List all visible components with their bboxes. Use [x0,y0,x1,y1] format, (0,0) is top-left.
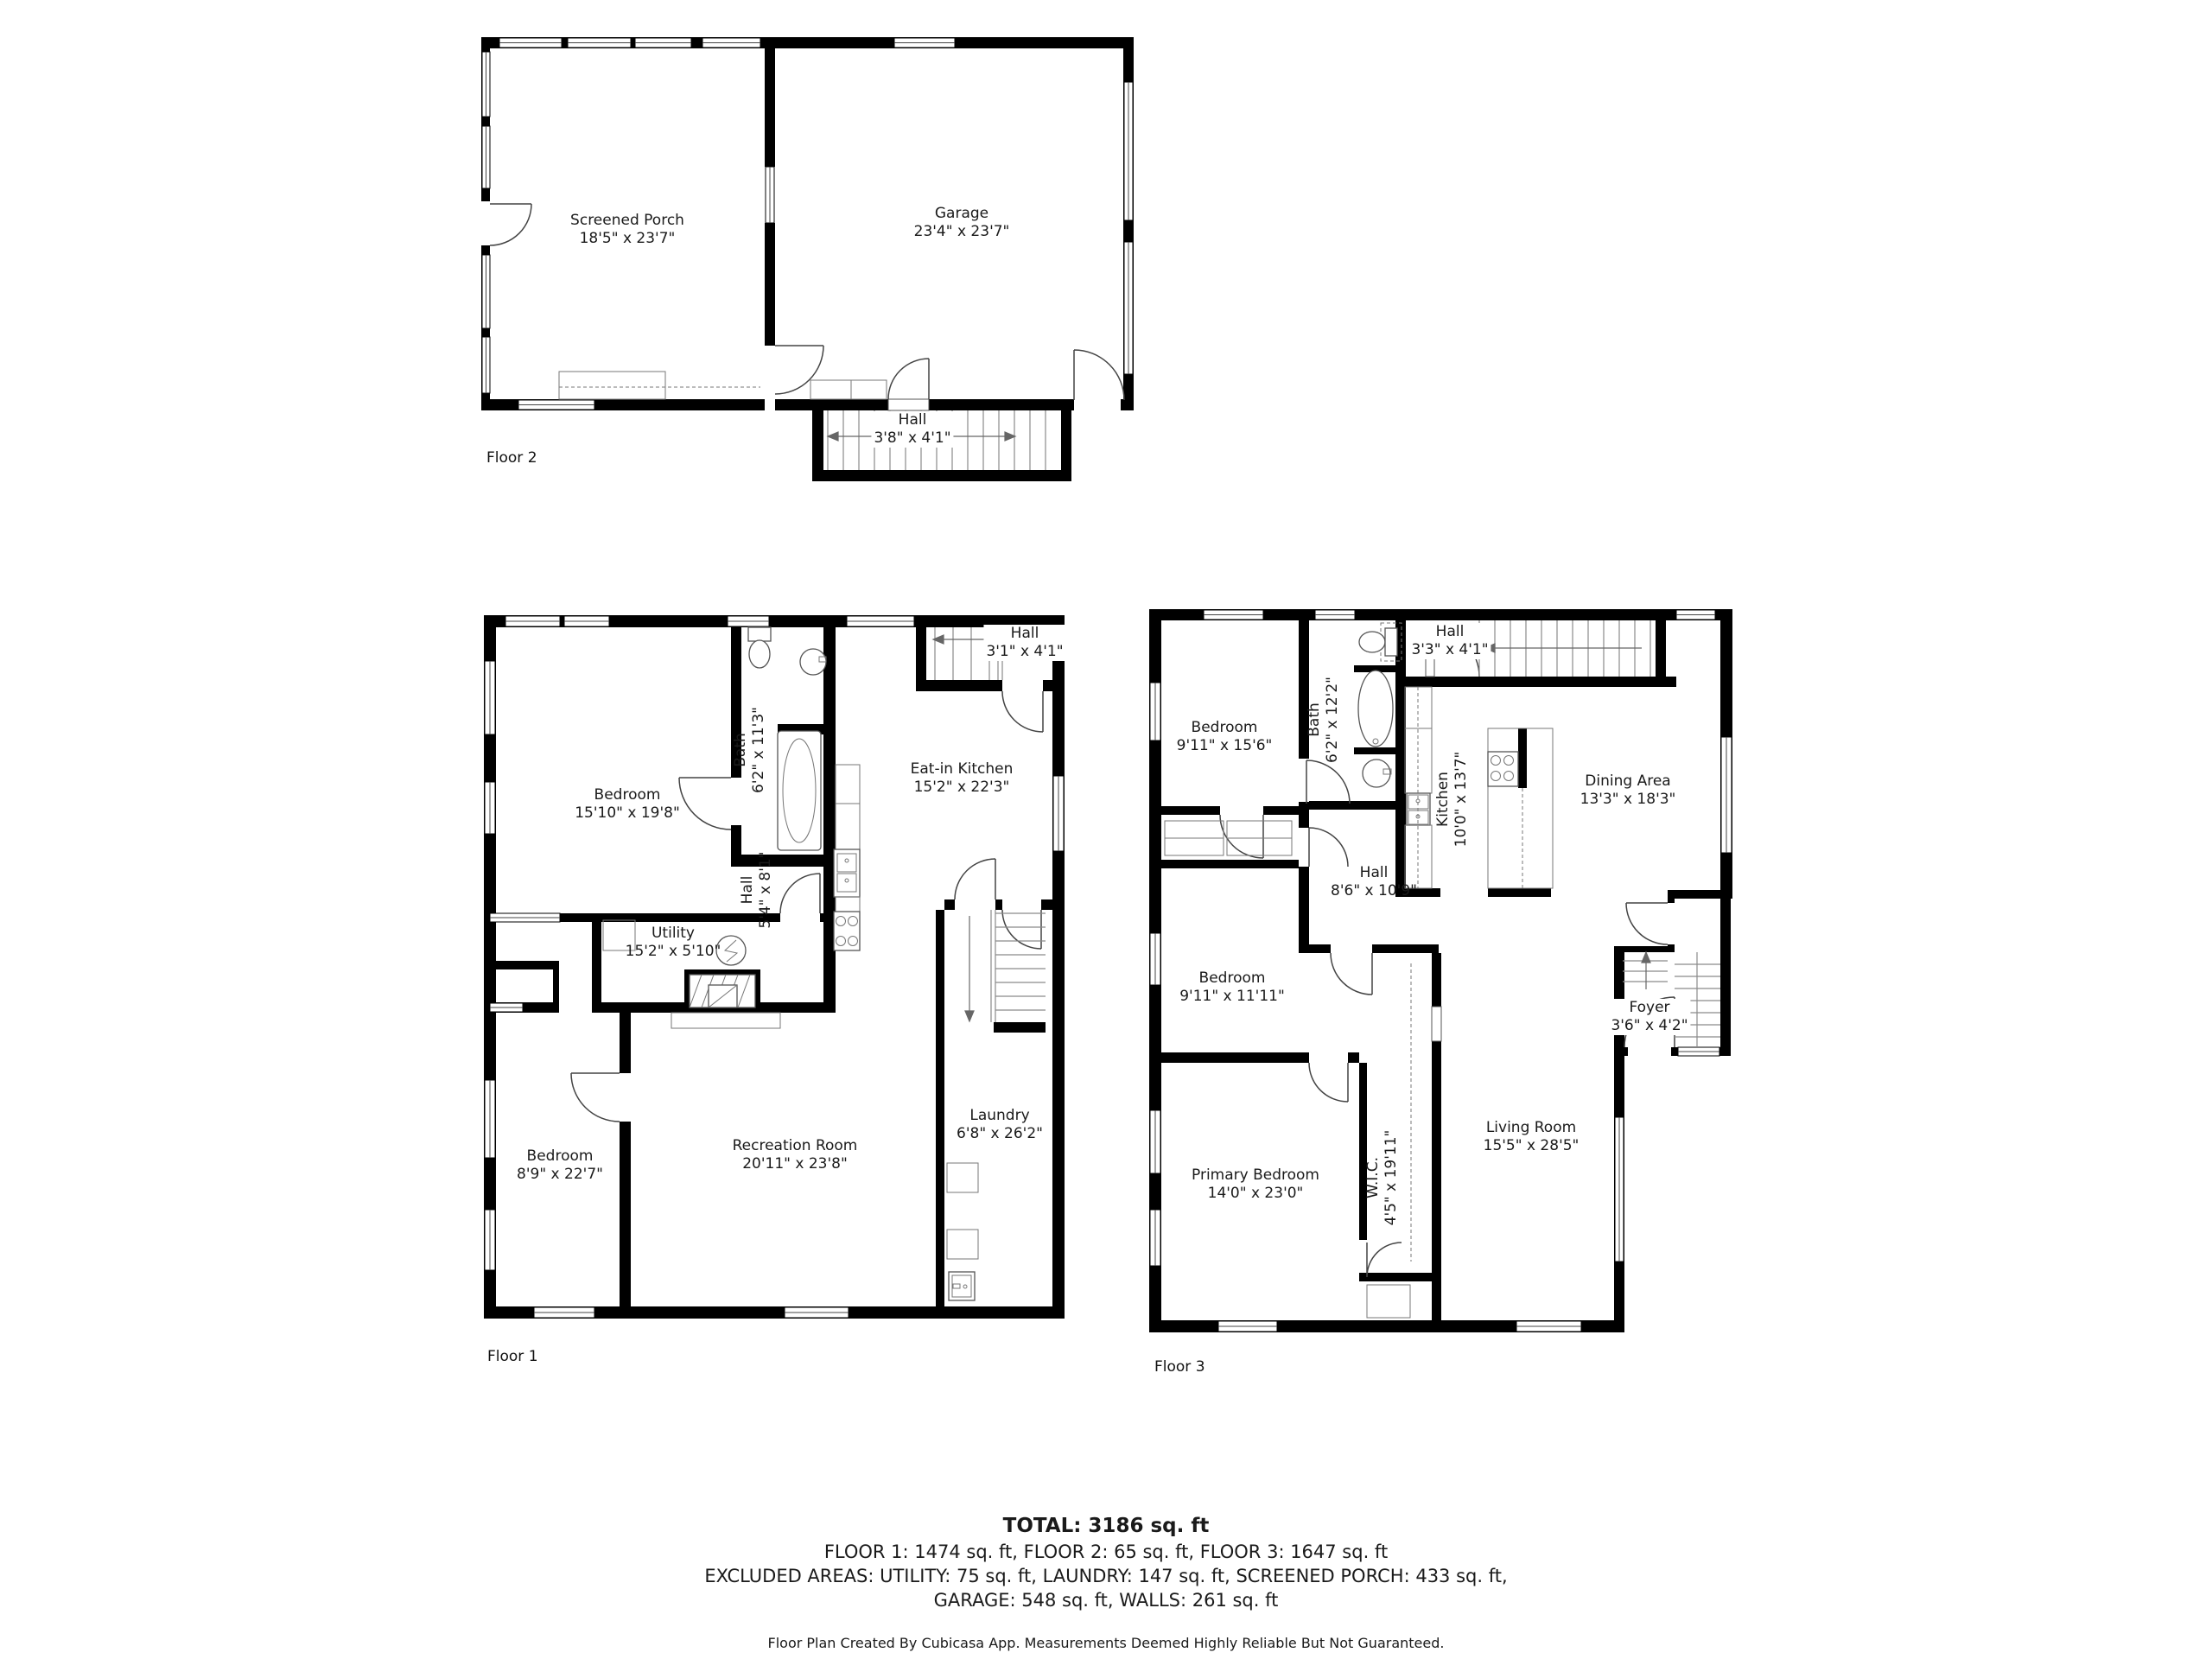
room-name: Hall [1411,623,1488,641]
floor-2-plan [481,37,1134,481]
room-label-kitchen-f3: Kitchen 10'0" x 13'7" [1434,752,1471,848]
toilet-fixture-icon [1359,632,1385,652]
dryer-icon [947,1230,978,1259]
summary-footer: Floor Plan Created By Cubicasa App. Meas… [0,1635,2212,1651]
room-name: Kitchen [1434,752,1452,848]
room-dims: 6'2" x 12'2" [1324,677,1342,763]
room-dims: 3'8" x 4'1" [874,429,950,448]
room-dims: 5'4" x 8'1" [757,851,775,928]
toilet-fixture-icon [748,627,771,641]
room-dims: 23'4" x 23'7" [914,223,1010,241]
room-dims: 6'8" x 26'2" [957,1125,1043,1143]
summary-excluded-line-1: EXCLUDED AREAS: UTILITY: 75 sq. ft, LAUN… [0,1566,2212,1586]
room-name: Bath [1306,677,1324,763]
room-name: W.I.C. [1364,1130,1382,1226]
room-label-hall-mid-f3: Hall 8'6" x 10'9" [1331,864,1417,900]
room-label-bedroom-2-f1: Bedroom 8'9" x 22'7" [517,1147,603,1184]
bathtub-fixture-icon [778,731,821,850]
fridge-icon [836,765,860,804]
room-dims: 3'3" x 4'1" [1411,641,1488,659]
washer-icon [947,1163,978,1192]
floor-1-plan [484,615,1065,1319]
room-name: Foyer [1611,999,1688,1017]
room-dims: 20'11" x 23'8" [733,1155,858,1173]
room-name: Hall [1331,864,1417,882]
room-name: Bedroom [1179,969,1285,988]
room-label-hall-top-f3: Hall 3'3" x 4'1" [1408,623,1491,659]
summary-total: TOTAL: 3186 sq. ft [0,1515,2212,1537]
room-label-utility: Utility 15'2" x 5'10" [626,925,721,961]
room-label-hall-f2: Hall 3'8" x 4'1" [871,411,953,448]
room-label-dining-area: Dining Area 13'3" x 18'3" [1580,772,1676,809]
floor-2-caption: Floor 2 [486,449,537,467]
room-name: Bedroom [575,786,680,804]
room-dims: 15'2" x 5'10" [626,943,721,961]
room-name: Utility [626,925,721,943]
floorplan-page: { "floors": [ { "caption": "Floor 2", "r… [0,0,2212,1659]
room-label-recreation-room: Recreation Room 20'11" x 23'8" [733,1137,858,1173]
room-dims: 4'5" x 19'11" [1382,1130,1401,1226]
floor-2-furniture [559,372,887,399]
room-label-bedroom-2-f3: Bedroom 9'11" x 11'11" [1179,969,1285,1006]
room-name: Living Room [1484,1119,1580,1137]
floor-2-walls [481,37,1134,481]
room-dims: 15'2" x 22'3" [911,779,1014,797]
room-name: Garage [914,205,1010,223]
room-dims: 3'6" x 4'2" [1611,1017,1688,1035]
room-label-bath-f3: Bath 6'2" x 12'2" [1306,677,1342,763]
room-dims: 3'1" x 4'1" [986,643,1063,661]
fireplace-icon [690,975,755,1007]
summary-excluded-line-2: GARAGE: 548 sq. ft, WALLS: 261 sq. ft [0,1590,2212,1611]
room-label-bath-f1: Bath 6'2" x 11'3" [732,707,768,793]
room-label-foyer: Foyer 3'6" x 4'2" [1608,999,1690,1035]
room-label-laundry: Laundry 6'8" x 26'2" [957,1107,1043,1143]
floor-3-caption: Floor 3 [1154,1358,1205,1376]
floorplan-drawing [0,0,2212,1659]
room-dims: 18'5" x 23'7" [570,230,684,248]
room-dims: 14'0" x 23'0" [1192,1185,1319,1203]
room-label-hall-mid-f1: Hall 5'4" x 8'1" [739,851,775,928]
room-dims: 9'11" x 11'11" [1179,988,1285,1006]
room-dims: 9'11" x 15'6" [1177,737,1273,755]
room-label-garage: Garage 23'4" x 23'7" [914,205,1010,241]
room-label-wic: W.I.C. 4'5" x 19'11" [1364,1130,1401,1226]
room-name: Dining Area [1580,772,1676,791]
room-name: Bedroom [1177,719,1273,737]
room-label-screened-porch: Screened Porch 18'5" x 23'7" [570,212,684,248]
floor-1-windows [485,616,1064,1318]
room-name: Hall [874,411,950,429]
room-label-bedroom-1-f1: Bedroom 15'10" x 19'8" [575,786,680,823]
room-name: Bedroom [517,1147,603,1166]
room-dims: 15'5" x 28'5" [1484,1137,1580,1155]
room-label-eat-in-kitchen: Eat-in Kitchen 15'2" x 22'3" [911,760,1014,797]
room-name: Recreation Room [733,1137,858,1155]
room-dims: 8'9" x 22'7" [517,1166,603,1184]
room-label-living-room: Living Room 15'5" x 28'5" [1484,1119,1580,1155]
room-label-hall-top-f1: Hall 3'1" x 4'1" [983,625,1065,661]
room-dims: 15'10" x 19'8" [575,804,680,823]
room-name: Hall [986,625,1063,643]
room-label-primary-bedroom: Primary Bedroom 14'0" x 23'0" [1192,1166,1319,1203]
bathtub-fixture-icon [1358,671,1393,747]
room-dims: 13'3" x 18'3" [1580,791,1676,809]
room-dims: 6'2" x 11'3" [750,707,768,793]
room-name: Primary Bedroom [1192,1166,1319,1185]
sink-fixture-icon [1363,760,1390,787]
room-name: Laundry [957,1107,1043,1125]
room-name: Hall [739,851,757,928]
room-name: Eat-in Kitchen [911,760,1014,779]
floor-1-walls [484,615,1065,1319]
room-name: Bath [732,707,750,793]
room-name: Screened Porch [570,212,684,230]
room-dims: 10'0" x 13'7" [1452,752,1471,848]
room-label-bedroom-1-f3: Bedroom 9'11" x 15'6" [1177,719,1273,755]
floor-1-caption: Floor 1 [487,1348,538,1365]
room-dims: 8'6" x 10'9" [1331,882,1417,900]
summary-floors-line: FLOOR 1: 1474 sq. ft, FLOOR 2: 65 sq. ft… [0,1541,2212,1562]
